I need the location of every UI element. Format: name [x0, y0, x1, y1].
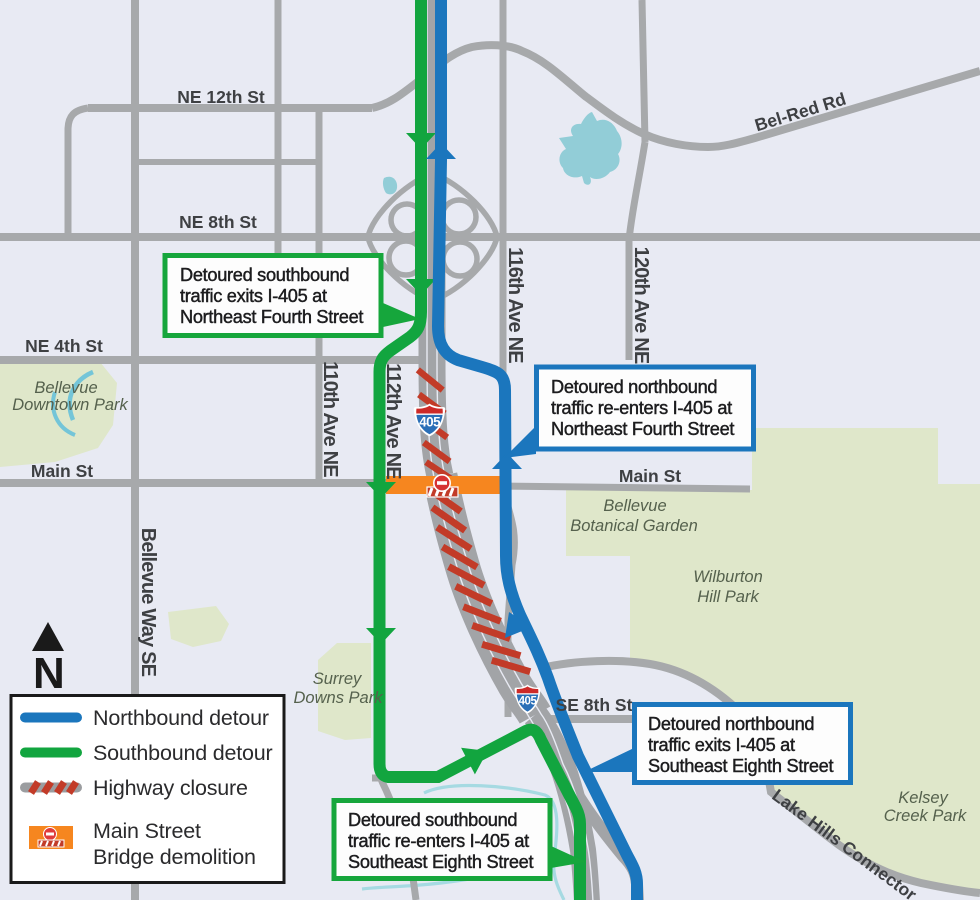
- svg-text:Northbound detour: Northbound detour: [93, 706, 269, 730]
- svg-text:NE 4th St: NE 4th St: [25, 336, 103, 356]
- svg-text:Southbound detour: Southbound detour: [93, 741, 273, 765]
- svg-text:Northeast Fourth Street: Northeast Fourth Street: [551, 419, 734, 439]
- svg-text:Bellevue Way SE: Bellevue Way SE: [137, 528, 159, 677]
- svg-text:Wilburton: Wilburton: [693, 568, 763, 586]
- svg-text:Detoured southbound: Detoured southbound: [180, 265, 349, 285]
- svg-text:Bellevue: Bellevue: [603, 497, 666, 515]
- svg-text:Downtown Park: Downtown Park: [12, 396, 128, 414]
- svg-text:Detoured northbound: Detoured northbound: [648, 714, 814, 734]
- svg-text:N: N: [33, 649, 65, 698]
- svg-text:Highway closure: Highway closure: [93, 776, 248, 800]
- svg-text:SE 8th St: SE 8th St: [556, 695, 633, 715]
- svg-text:Main Street: Main Street: [93, 819, 201, 843]
- svg-text:Southeast Eighth Street: Southeast Eighth Street: [648, 756, 833, 776]
- svg-text:116th Ave NE: 116th Ave NE: [504, 247, 526, 363]
- svg-text:traffic re-enters I-405 at: traffic re-enters I-405 at: [348, 831, 529, 851]
- svg-text:NE 8th St: NE 8th St: [179, 212, 257, 232]
- svg-text:NE 12th St: NE 12th St: [177, 87, 265, 107]
- svg-text:Southeast Eighth Street: Southeast Eighth Street: [348, 852, 533, 872]
- svg-text:Kelsey: Kelsey: [898, 789, 949, 807]
- svg-text:traffic exits I-405 at: traffic exits I-405 at: [180, 286, 327, 306]
- svg-text:Surrey: Surrey: [313, 670, 363, 688]
- svg-text:Botanical Garden: Botanical Garden: [570, 517, 698, 535]
- svg-text:Main St: Main St: [31, 461, 93, 481]
- svg-text:405: 405: [419, 415, 441, 430]
- svg-text:Hill Park: Hill Park: [697, 588, 759, 606]
- svg-text:traffic exits I-405 at: traffic exits I-405 at: [648, 735, 795, 755]
- svg-text:Creek Park: Creek Park: [884, 807, 967, 825]
- svg-text:Bellevue: Bellevue: [34, 379, 97, 397]
- svg-text:Main St: Main St: [619, 466, 681, 486]
- svg-text:110th Ave NE: 110th Ave NE: [319, 361, 341, 477]
- svg-text:Bridge demolition: Bridge demolition: [93, 845, 256, 869]
- svg-text:Downs Park: Downs Park: [294, 689, 384, 707]
- svg-text:112th Ave NE: 112th Ave NE: [382, 363, 404, 479]
- svg-text:Detoured southbound: Detoured southbound: [348, 810, 517, 830]
- svg-text:120th Ave NE: 120th Ave NE: [630, 247, 652, 364]
- svg-text:Northeast Fourth Street: Northeast Fourth Street: [180, 307, 363, 327]
- svg-text:Detoured northbound: Detoured northbound: [551, 377, 717, 397]
- svg-text:405: 405: [519, 696, 538, 708]
- svg-text:traffic re-enters I-405 at: traffic re-enters I-405 at: [551, 398, 732, 418]
